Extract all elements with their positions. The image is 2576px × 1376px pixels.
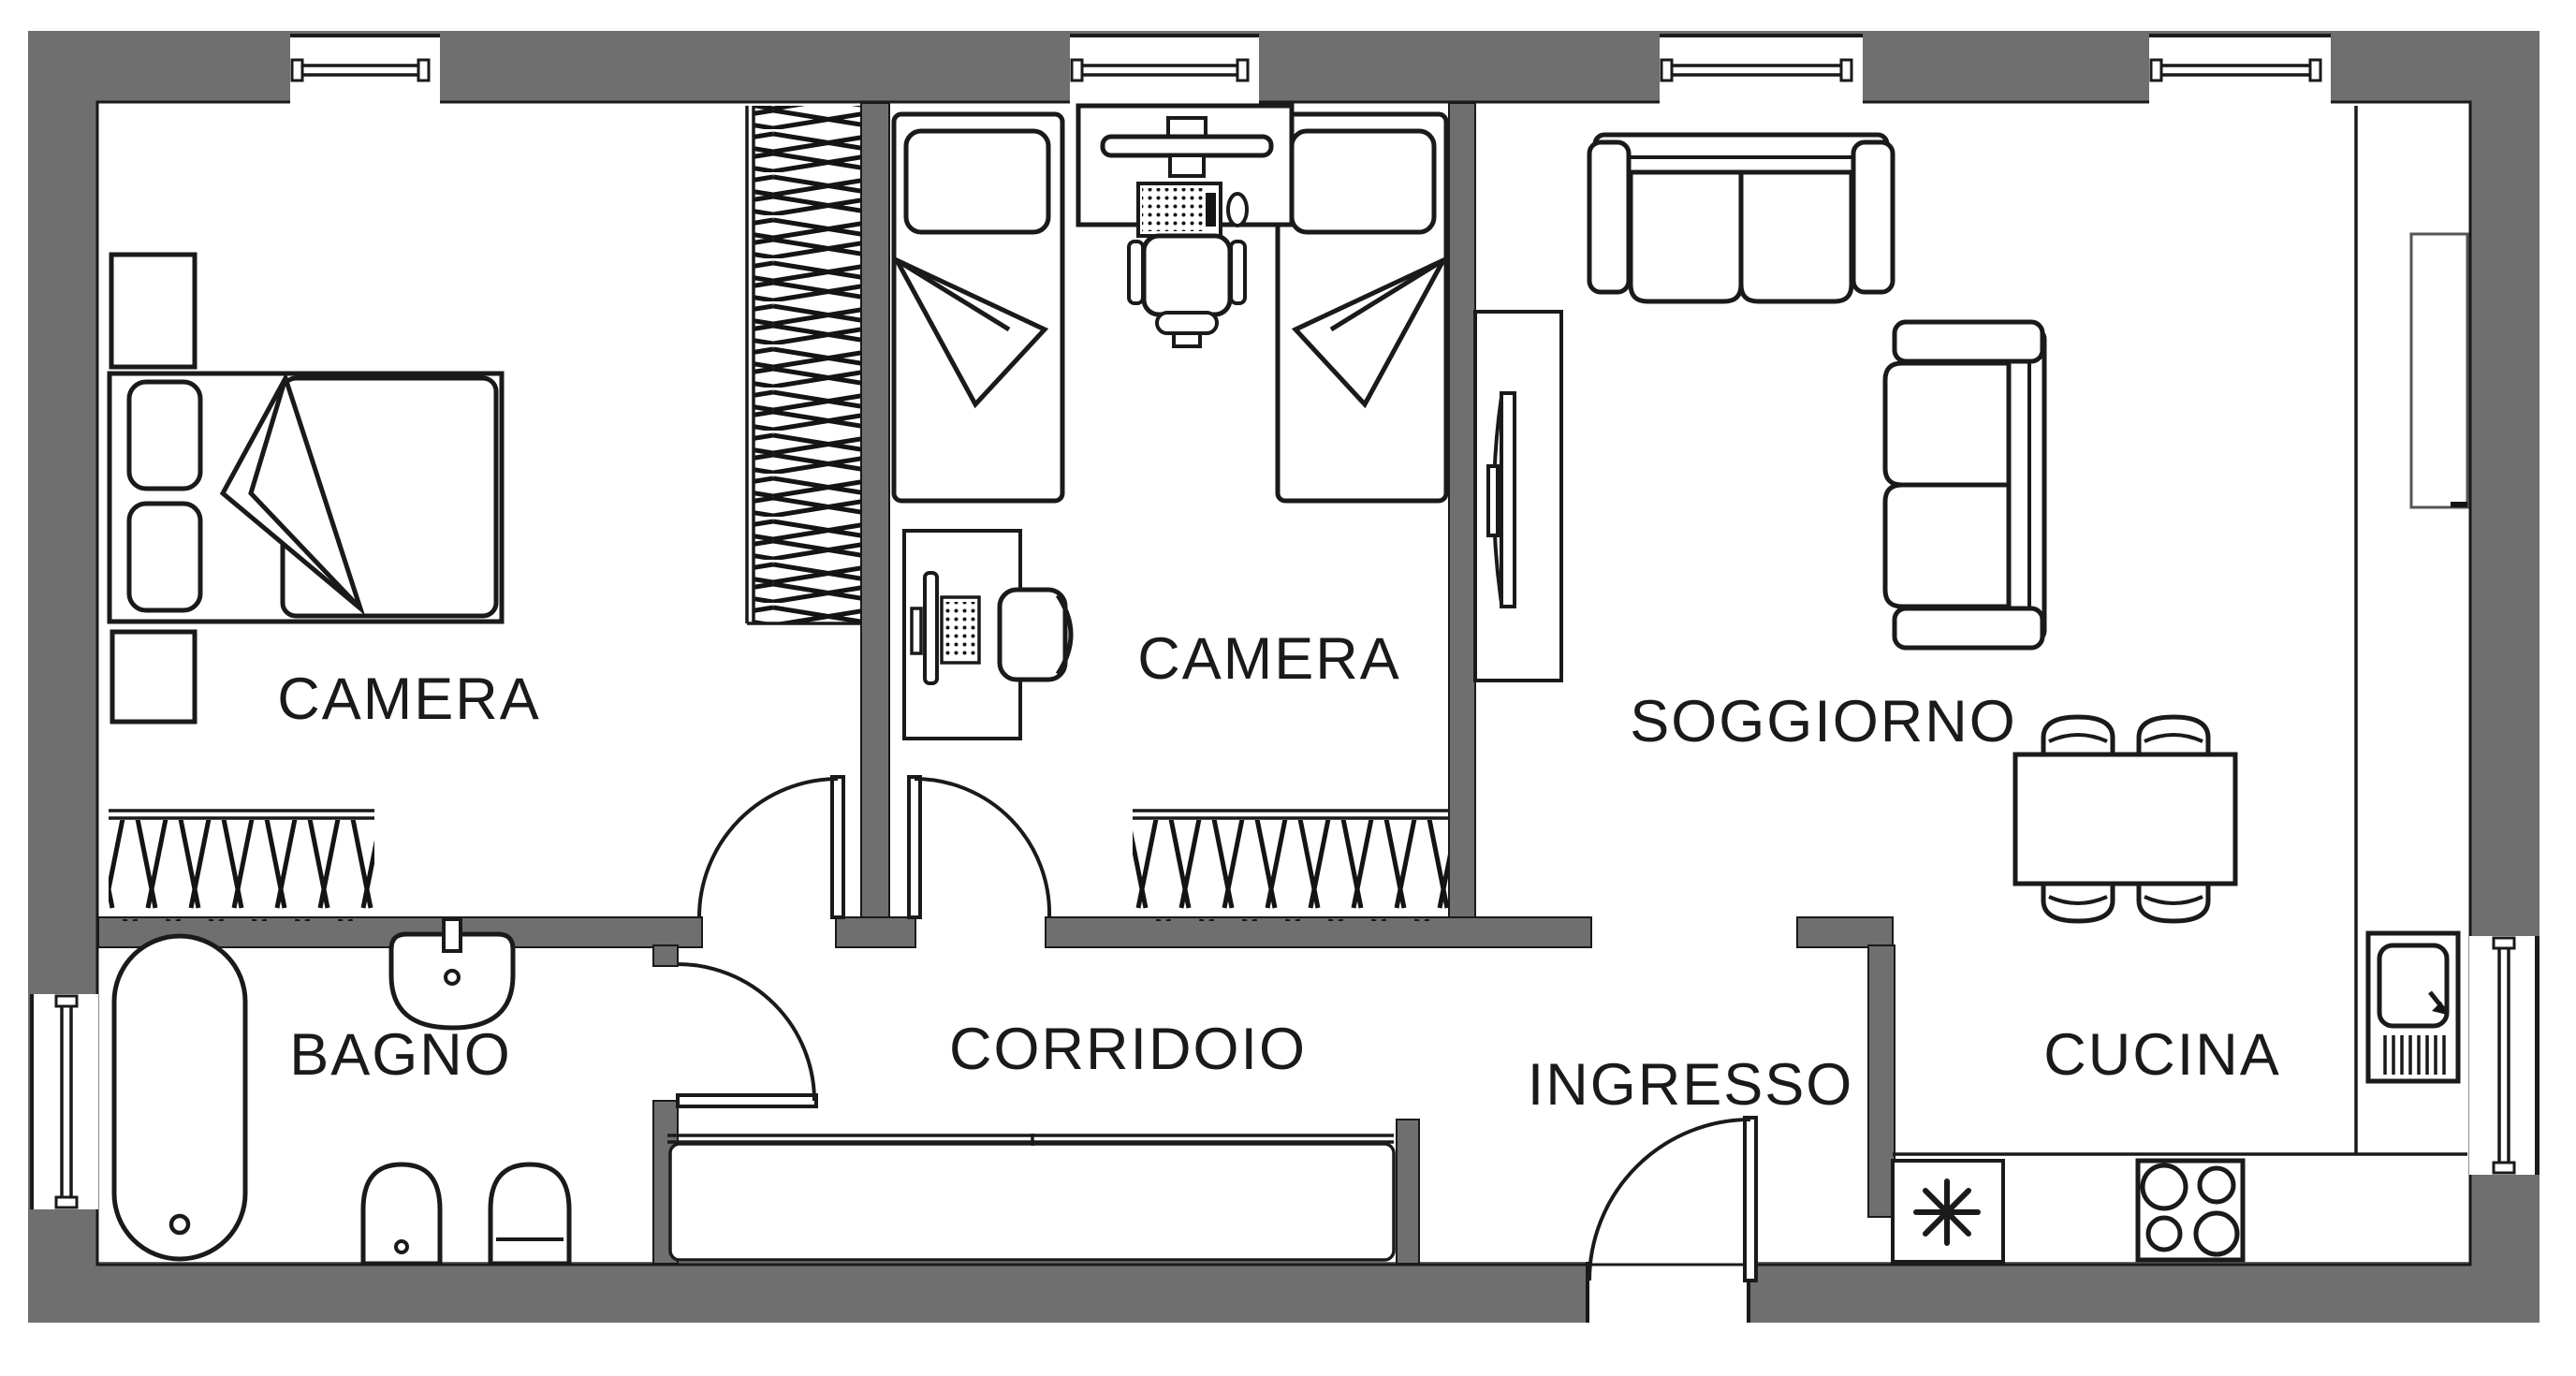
window-top-camera2 — [1070, 34, 1259, 106]
bidet — [490, 1164, 569, 1264]
room-label-camera2: CAMERA — [1137, 626, 1401, 692]
dining-table-with-chairs — [2015, 717, 2235, 921]
window-top-cucina — [2149, 34, 2331, 106]
nightstand-top — [111, 255, 195, 367]
double-bed — [110, 373, 502, 622]
room-label-soggiorno: SOGGIORNO — [1630, 689, 2017, 754]
washbasin — [391, 919, 513, 1028]
tv-cabinet — [1475, 312, 1561, 681]
room-label-bagno: BAGNO — [289, 1022, 512, 1088]
toilet — [363, 1164, 440, 1264]
room-label-camera1: CAMERA — [277, 666, 541, 732]
snowflake-icon — [1916, 1181, 1978, 1243]
room-label-cucina: CUCINA — [2043, 1022, 2281, 1088]
room-label-ingresso: INGRESSO — [1528, 1052, 1854, 1118]
window-left-bagno — [30, 994, 98, 1209]
floor-plan-drawing: CAMERA CAMERA SOGGIORNO BAGNO CORRIDOIO … — [0, 0, 2576, 1376]
window-top-camera1 — [290, 34, 440, 106]
radiator-camera1 — [109, 811, 374, 921]
desk-computer — [1078, 106, 1292, 236]
window-right-cucina — [2469, 936, 2539, 1175]
single-bed-left — [894, 114, 1062, 501]
door-camera2 — [909, 777, 1049, 917]
kitchen-tall-unit — [2411, 234, 2467, 507]
radiator-camera2 — [1133, 811, 1449, 921]
sofa-two-seat-right — [1885, 322, 2044, 648]
cooktop — [2138, 1161, 2243, 1260]
window-top-soggiorno — [1660, 34, 1863, 106]
corridor-closet — [667, 1134, 1394, 1260]
mouse-icon — [1228, 194, 1247, 226]
sofa-two-seat-top — [1589, 135, 1893, 301]
bathtub — [114, 936, 245, 1259]
door-entrance — [1586, 1118, 1756, 1323]
second-desk-computer — [904, 531, 1071, 739]
floor-plan: CAMERA CAMERA SOGGIORNO BAGNO CORRIDOIO … — [0, 0, 2576, 1376]
kitchen-sink — [2368, 933, 2458, 1081]
wardrobe — [747, 106, 861, 623]
door-camera1 — [699, 777, 843, 917]
room-label-corridoio: CORRIDOIO — [949, 1017, 1307, 1082]
boiler-unit — [1893, 1161, 2003, 1262]
keyboard-icon — [1138, 183, 1221, 236]
nightstand-bottom — [112, 632, 195, 722]
door-bagno — [678, 964, 816, 1106]
desk-chair — [1129, 236, 1245, 346]
single-bed-right — [1278, 114, 1446, 501]
